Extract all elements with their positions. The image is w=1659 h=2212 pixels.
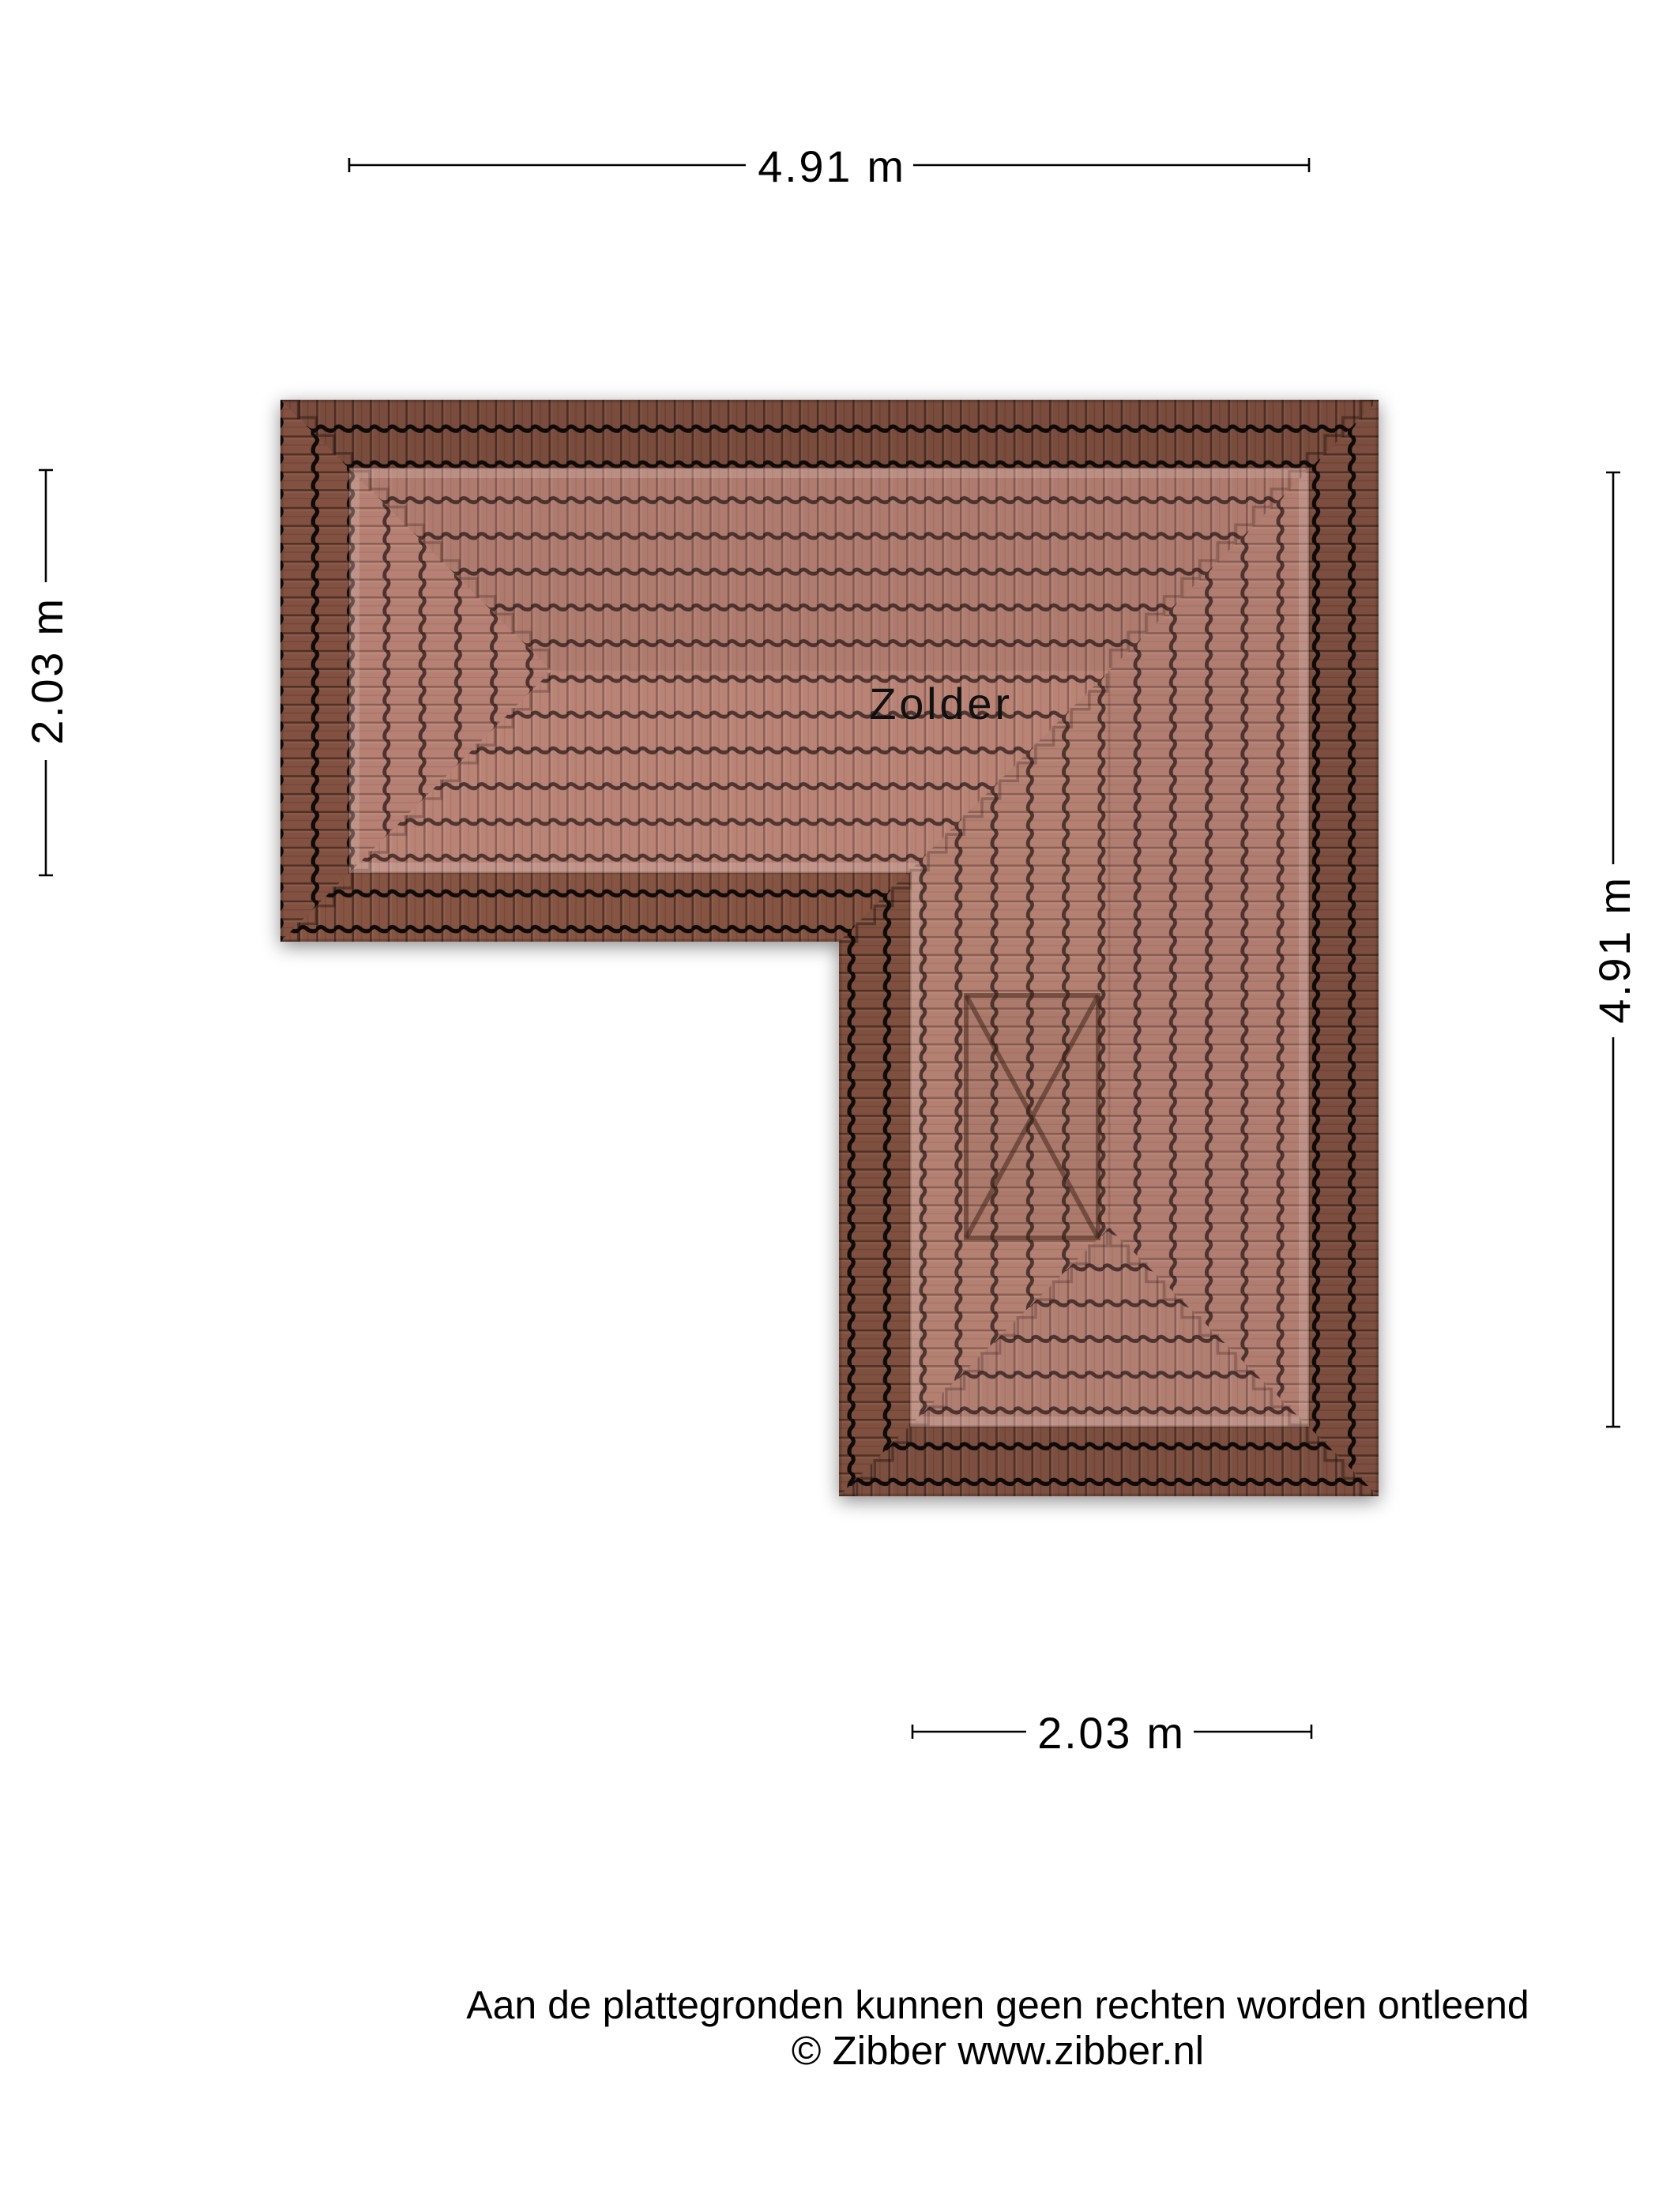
svg-text:Zolder: Zolder	[869, 679, 1013, 728]
svg-text:© Zibber www.zibber.nl: © Zibber www.zibber.nl	[792, 2028, 1204, 2073]
svg-text:2.03 m: 2.03 m	[1037, 1708, 1185, 1758]
svg-text:Aan de plattegronden kunnen ge: Aan de plattegronden kunnen geen rechten…	[466, 1983, 1529, 2027]
svg-text:2.03 m: 2.03 m	[22, 596, 72, 744]
svg-text:4.91 m: 4.91 m	[1589, 875, 1639, 1023]
svg-text:4.91 m: 4.91 m	[758, 141, 905, 191]
